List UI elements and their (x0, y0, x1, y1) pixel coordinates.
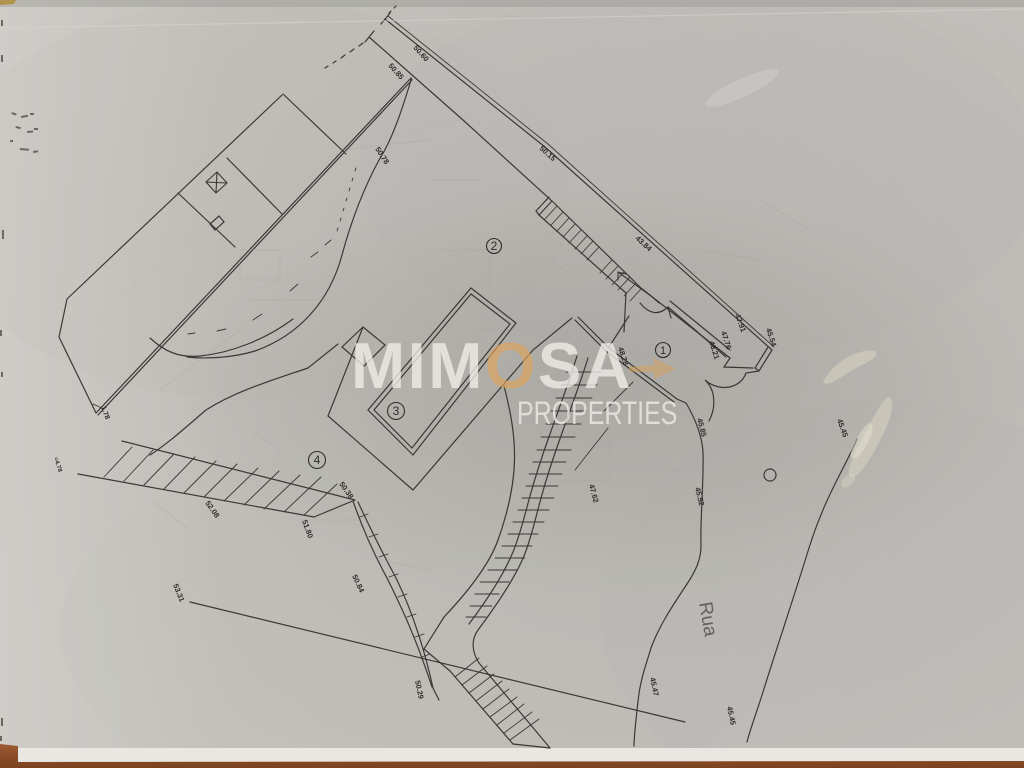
svg-text:3: 3 (393, 404, 400, 418)
svg-text:MIMOSA: MIMOSA (351, 329, 633, 402)
svg-text:1: 1 (660, 345, 666, 357)
svg-text:4: 4 (314, 453, 321, 467)
svg-text:PROPERTIES: PROPERTIES (517, 396, 677, 432)
svg-text:2: 2 (491, 239, 498, 253)
